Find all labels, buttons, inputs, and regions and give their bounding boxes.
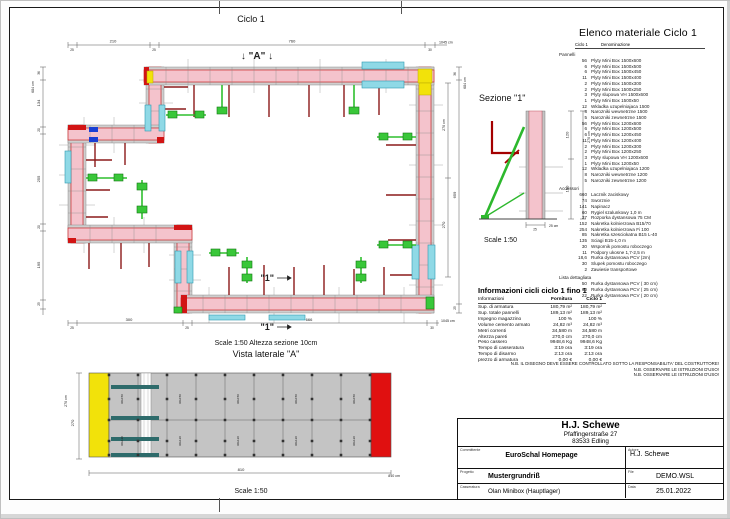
svg-text:30: 30 [428, 48, 432, 52]
material-group-label: Pannelli [559, 52, 719, 57]
material-list-header: Ciclo 1 Denominazione [575, 42, 705, 49]
fold-mark [219, 1, 220, 14]
material-row: 5Narozniki zewnetrzne 1200 [557, 178, 719, 184]
material-list-title: Elenco materiale Ciclo 1 [557, 27, 719, 39]
cycle-info-header: Informazioni Fornitura Ciclo 1 [478, 297, 606, 304]
field-casseratura: Casseratura Olan Minibox (Hauptlager) [458, 484, 626, 498]
fold-mark [219, 498, 220, 512]
title-block-company: H.J. Schewe Pfaffingerstraße 27 83533 Ed… [458, 419, 723, 447]
material-name: Narozniki zewnetrzne 1200 [591, 178, 719, 184]
field-file: File DEMO.WSL [626, 469, 723, 483]
company-address-line1: Pfaffingerstraße 27 [458, 431, 723, 438]
cycle-info-table: Informazioni cicli ciclo 1 fino 1 Inform… [478, 286, 606, 364]
svg-text:300: 300 [126, 317, 133, 322]
svg-text:1045 cm: 1045 cm [441, 319, 455, 323]
svg-text:36: 36 [453, 72, 457, 76]
push-pull-prop [485, 127, 524, 217]
svg-text:134: 134 [36, 99, 41, 106]
svg-text:90x120: 90x120 [352, 436, 356, 446]
svg-text:255: 255 [36, 175, 41, 182]
nb-notes: N.B. IL DISEGNO DEVE ESSERE CONTROLLATO … [401, 361, 719, 378]
svg-text:90x120: 90x120 [294, 436, 298, 446]
svg-text:760: 760 [289, 39, 296, 44]
svg-text:666: 666 [306, 317, 313, 322]
field-data: Data 25.01.2022 [626, 484, 723, 498]
svg-text:810 cm: 810 cm [388, 474, 400, 478]
section-a-marker: ↓ "A" ↓ [241, 51, 273, 62]
material-qty: 2 [557, 267, 591, 273]
svg-text:90x120: 90x120 [236, 436, 240, 446]
svg-text:270 cm: 270 cm [442, 119, 446, 131]
svg-text:1045 cm: 1045 cm [439, 41, 453, 45]
svg-text:270: 270 [70, 419, 75, 426]
company-name: H.J. Schewe [458, 420, 723, 431]
svg-text:90x150: 90x150 [178, 394, 182, 404]
svg-text:270 cm: 270 cm [64, 395, 68, 407]
floor-plan-drawing: 25 210 25 760 30 1045 cm 684 cm 36 134 2… [29, 25, 474, 347]
svg-text:36: 36 [37, 71, 41, 75]
drawing-page: Ciclo 1 Scale 1:50 Altezza sezione 10cm … [0, 0, 730, 519]
svg-text:"1": "1" [260, 273, 274, 283]
svg-text:25: 25 [533, 228, 537, 232]
svg-text:"1": "1" [260, 322, 274, 332]
material-name: Rurka dystansowa PCV ( 20 cm) [591, 293, 719, 299]
svg-text:659: 659 [452, 191, 457, 198]
cycle-info-title: Informazioni cicli ciclo 1 fino 1 [478, 286, 606, 295]
title-block: H.J. Schewe Pfaffingerstraße 27 83533 Ed… [457, 418, 724, 500]
svg-text:270: 270 [441, 221, 446, 228]
material-name: Zawiesie transportowe [591, 267, 719, 273]
section-wall [529, 111, 542, 219]
field-progetto: Progetto Mustergrundriß [458, 469, 626, 483]
side-view-yellow-panel [89, 373, 109, 457]
side-view-red-panel [371, 373, 391, 457]
svg-text:20: 20 [37, 225, 41, 229]
svg-text:210: 210 [110, 39, 117, 44]
svg-text:810: 810 [238, 467, 245, 472]
svg-text:30: 30 [430, 326, 434, 330]
svg-text:90x150: 90x150 [294, 394, 298, 404]
fold-mark [401, 1, 402, 14]
svg-text:684 cm: 684 cm [463, 77, 467, 89]
svg-text:25: 25 [70, 48, 74, 52]
company-address-line2: 83533 Edling [458, 438, 723, 445]
vista-scale-note: Scale 1:50 [151, 488, 351, 495]
svg-text:90x150: 90x150 [236, 394, 240, 404]
svg-text:90x150: 90x150 [120, 394, 124, 404]
svg-text:684 cm: 684 cm [31, 81, 35, 93]
green-braces [86, 85, 416, 283]
material-qty: 5 [557, 178, 591, 184]
field-autore: Autore H.J. Schewe [626, 447, 723, 468]
svg-text:90x120: 90x120 [178, 436, 182, 446]
material-group-label: Lista dettagliata [559, 275, 719, 280]
field-committente: Committente EuroSchal Homepage [458, 447, 626, 468]
material-group-label: Accessori [559, 186, 719, 191]
side-view-drawing: 270 cm 270 810 810 cm 90x150 90x150 90x1… [61, 361, 401, 487]
nb-note: N.B. OSSERVARE LE ISTRUZIONI D'USO! [401, 372, 719, 378]
svg-text:25: 25 [37, 302, 41, 306]
svg-text:195: 195 [36, 261, 41, 268]
svg-text:20: 20 [37, 128, 41, 132]
svg-text:25: 25 [70, 326, 74, 330]
svg-text:90x150: 90x150 [352, 394, 356, 404]
plan-title: Ciclo 1 [181, 14, 321, 24]
material-row: 2Zawiesie transportowe [557, 267, 719, 273]
svg-text:25: 25 [453, 306, 457, 310]
svg-text:25: 25 [152, 48, 156, 52]
svg-text:90x120: 90x120 [120, 436, 124, 446]
material-list: Elenco materiale Ciclo 1 Ciclo 1 Denomin… [557, 27, 719, 298]
svg-text:25: 25 [185, 326, 189, 330]
vista-laterale-title: Vista laterale "A" [136, 349, 396, 359]
